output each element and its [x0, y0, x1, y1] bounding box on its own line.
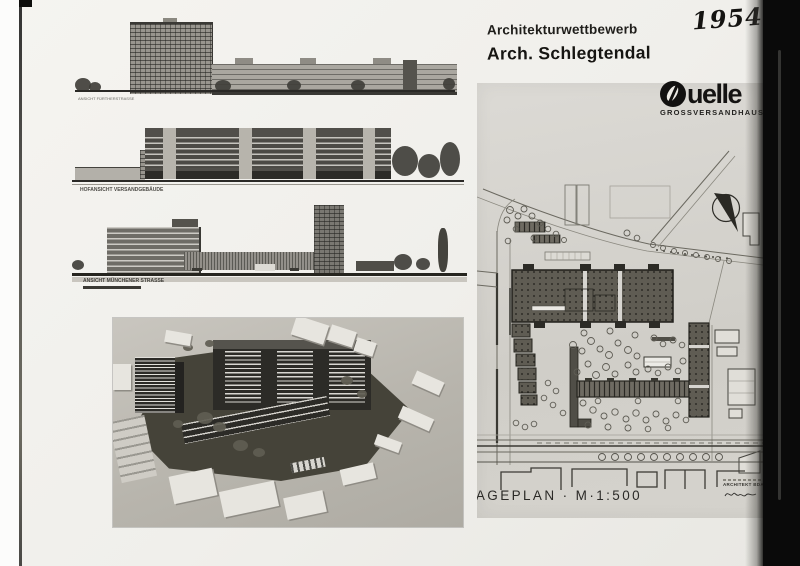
model-tree	[197, 412, 213, 424]
tower-block	[314, 205, 344, 273]
binding-edge	[19, 0, 22, 566]
model-slab-panel	[277, 351, 313, 404]
small-tower	[403, 60, 417, 92]
competition-title: Architekturwettbewerb	[487, 21, 638, 37]
next-page-edge	[778, 50, 781, 500]
low-wing	[184, 252, 324, 270]
model-neighbor-building	[283, 490, 327, 520]
model-neighbor-building	[113, 364, 131, 390]
plan-caption: LAGEPLAN · M·1:500	[477, 488, 642, 503]
model-tree	[205, 340, 214, 347]
base-band	[145, 171, 391, 179]
brand-text: uelle	[687, 81, 741, 107]
car-mark	[290, 268, 299, 271]
caption-underline	[83, 286, 141, 289]
model-photo	[113, 318, 463, 527]
model-neighbor-building	[164, 330, 192, 346]
elevation2-caption: HOFANSICHT VERSANDGEBÄUDE	[80, 187, 163, 193]
elevation-drawing-1: ANSICHT FÜRTHERSTRASSE	[75, 8, 460, 103]
model-slab-panel	[225, 351, 261, 404]
facade-pier	[163, 128, 176, 179]
cypress-tree	[438, 228, 448, 272]
ground-line-2	[72, 184, 464, 185]
page-curl-shadow	[745, 0, 763, 566]
ground-line	[72, 180, 464, 182]
model-neighbor-building	[411, 371, 444, 396]
model-tree	[341, 376, 353, 385]
scanned-page: ANSICHT FÜRTHERSTRASSE HOFANSICHT VERSAN…	[0, 0, 800, 566]
annex-wing	[75, 167, 145, 180]
model-tower	[135, 357, 175, 413]
main-slab	[145, 128, 391, 179]
tree-blob	[72, 260, 84, 270]
model-tree	[233, 440, 248, 451]
tree-blob	[443, 78, 455, 90]
elevation1-caption: ANSICHT FÜRTHERSTRASSE	[78, 96, 134, 101]
facade-pier	[303, 128, 316, 179]
right-annex	[356, 261, 394, 271]
elevation-drawing-3: ANSICHT MÜNCHENER STRASSE	[72, 198, 467, 292]
ground-line	[75, 90, 455, 92]
tree-blob	[418, 154, 440, 178]
site-plan-drawing	[477, 83, 763, 518]
model-neighbor-building	[398, 406, 434, 432]
tree-blob	[392, 146, 418, 176]
scan-background	[763, 0, 800, 566]
elevation3-caption: ANSICHT MÜNCHENER STRASSE	[83, 278, 164, 284]
model-tree	[213, 422, 226, 432]
car-mark	[192, 268, 202, 271]
model-tower-side	[175, 362, 184, 413]
facade-pier	[239, 128, 252, 179]
facade-pier	[363, 128, 375, 179]
corner-notch	[19, 0, 32, 7]
entrance-canopy	[255, 264, 275, 271]
architect-name: Arch. Schlegtendal	[487, 42, 651, 64]
tower-block	[130, 22, 213, 94]
tree-blob	[394, 254, 412, 270]
model-neighbor-building	[169, 468, 218, 505]
model-neighbor-building	[219, 480, 279, 517]
tree-blob	[440, 142, 460, 176]
left-margin	[0, 0, 19, 566]
model-tree	[253, 448, 265, 457]
elevation-drawing-2: HOFANSICHT VERSANDGEBÄUDE	[72, 112, 467, 194]
model-tree	[357, 390, 367, 398]
tree-blob	[416, 258, 430, 270]
model-neighbor-building	[374, 434, 402, 453]
model-tree	[173, 420, 183, 428]
quelle-q-icon	[660, 81, 686, 107]
site-plan-sheet: LAGEPLAN · M·1:500 ARCHITEKT BDA	[477, 83, 763, 518]
ground-line	[72, 273, 467, 276]
window-bands	[145, 137, 391, 168]
